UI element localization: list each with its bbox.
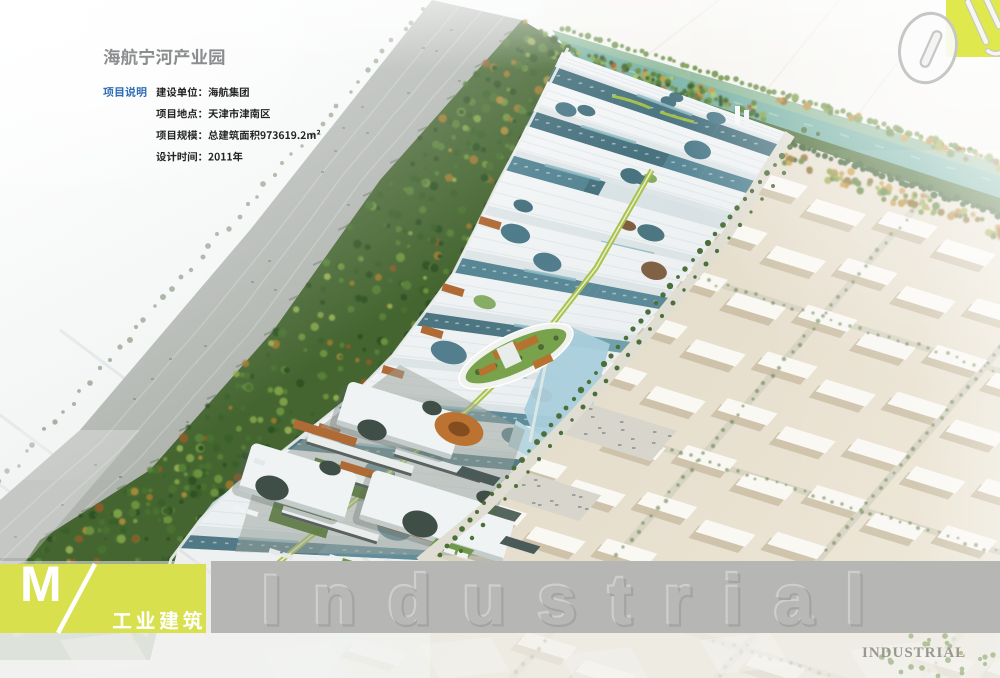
svg-text:Industrial: Industrial bbox=[262, 561, 897, 639]
svg-text:M: M bbox=[20, 556, 62, 612]
svg-text:INDUSTRIAL: INDUSTRIAL bbox=[862, 645, 966, 661]
